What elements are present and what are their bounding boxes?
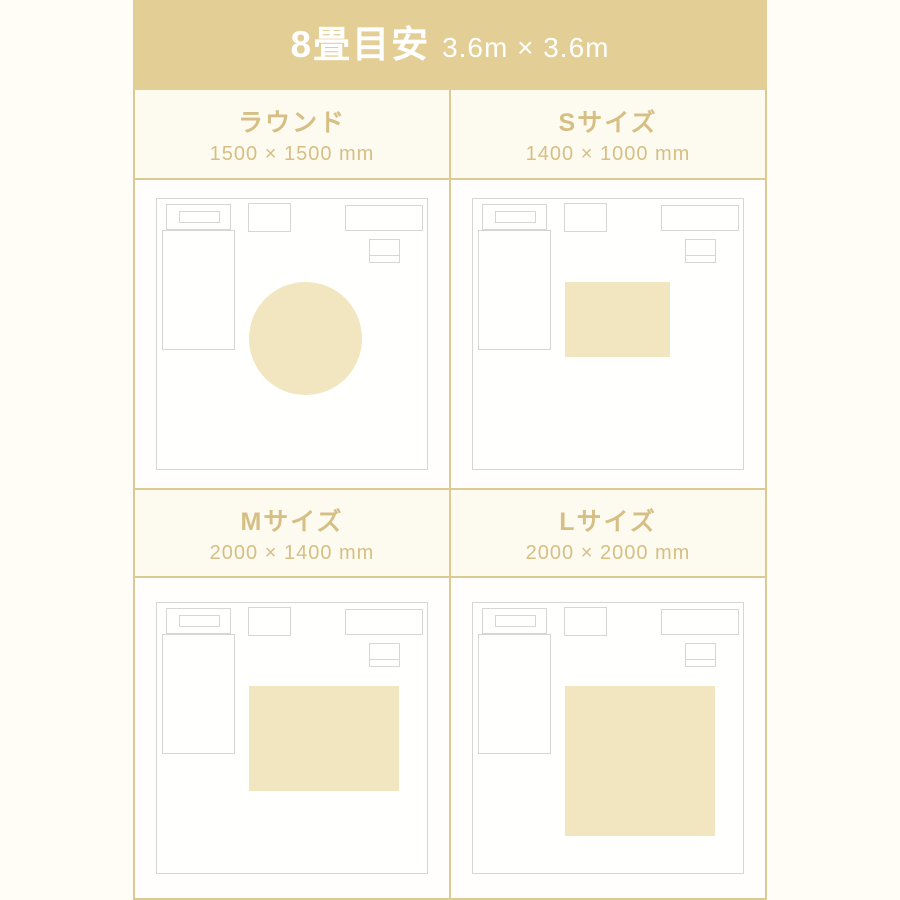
bed-pillow — [495, 211, 536, 223]
bed — [478, 634, 551, 754]
panel-header-l: Lサイズ 2000 × 2000 mm — [451, 490, 765, 576]
room-size-dimensions: 3.6m × 3.6m — [442, 32, 609, 64]
bed-pillow — [495, 615, 536, 627]
panel-dimensions: 1400 × 1000 mm — [526, 143, 691, 166]
panel-header-s: Sサイズ 1400 × 1000 mm — [451, 90, 765, 178]
panel-title: Mサイズ — [240, 502, 343, 538]
chair-backrest-line — [686, 255, 715, 256]
chair — [369, 643, 400, 667]
chair-backrest-line — [370, 255, 399, 256]
chest — [248, 607, 291, 636]
chair-backrest-line — [686, 659, 715, 660]
chest — [564, 607, 607, 636]
content-box: 8畳目安 3.6m × 3.6m ラウンド 1500 × 1500 mm Sサイ… — [133, 0, 767, 900]
bed-pillow — [179, 615, 220, 627]
chest — [564, 203, 607, 232]
rug-size-infographic: 8畳目安 3.6m × 3.6m ラウンド 1500 × 1500 mm Sサイ… — [0, 0, 900, 900]
room-outline — [156, 198, 428, 470]
panel-dimensions: 2000 × 1400 mm — [210, 542, 375, 565]
room-outline — [472, 198, 744, 470]
room-diagram-l — [451, 578, 765, 898]
chest — [248, 203, 291, 232]
chair — [685, 643, 716, 667]
chair — [369, 239, 400, 263]
desk — [661, 609, 739, 635]
bed-pillow — [179, 211, 220, 223]
bed — [162, 634, 235, 754]
room-outline — [156, 602, 428, 874]
rug-shape-m — [249, 686, 399, 791]
panel-header-round: ラウンド 1500 × 1500 mm — [135, 90, 449, 178]
rug-shape-round — [249, 282, 362, 395]
panel-header-m: Mサイズ 2000 × 1400 mm — [135, 490, 449, 576]
desk — [661, 205, 739, 231]
room-size-header: 8畳目安 3.6m × 3.6m — [133, 0, 767, 90]
room-outline — [472, 602, 744, 874]
chair-backrest-line — [370, 659, 399, 660]
room-diagram-m — [135, 578, 449, 898]
desk — [345, 205, 423, 231]
panel-title: ラウンド — [238, 103, 346, 139]
room-diagram-round — [135, 180, 449, 488]
panel-title: Lサイズ — [559, 502, 657, 538]
desk — [345, 609, 423, 635]
bed — [478, 230, 551, 350]
size-comparison-grid: ラウンド 1500 × 1500 mm Sサイズ 1400 × 1000 mm — [133, 90, 767, 900]
room-size-title: 8畳目安 — [291, 0, 431, 90]
rug-shape-s — [565, 282, 670, 357]
chair — [685, 239, 716, 263]
rug-shape-l — [565, 686, 715, 836]
panel-title: Sサイズ — [559, 103, 658, 139]
panel-dimensions: 1500 × 1500 mm — [210, 143, 375, 166]
room-diagram-s — [451, 180, 765, 488]
bed — [162, 230, 235, 350]
panel-dimensions: 2000 × 2000 mm — [526, 542, 691, 565]
